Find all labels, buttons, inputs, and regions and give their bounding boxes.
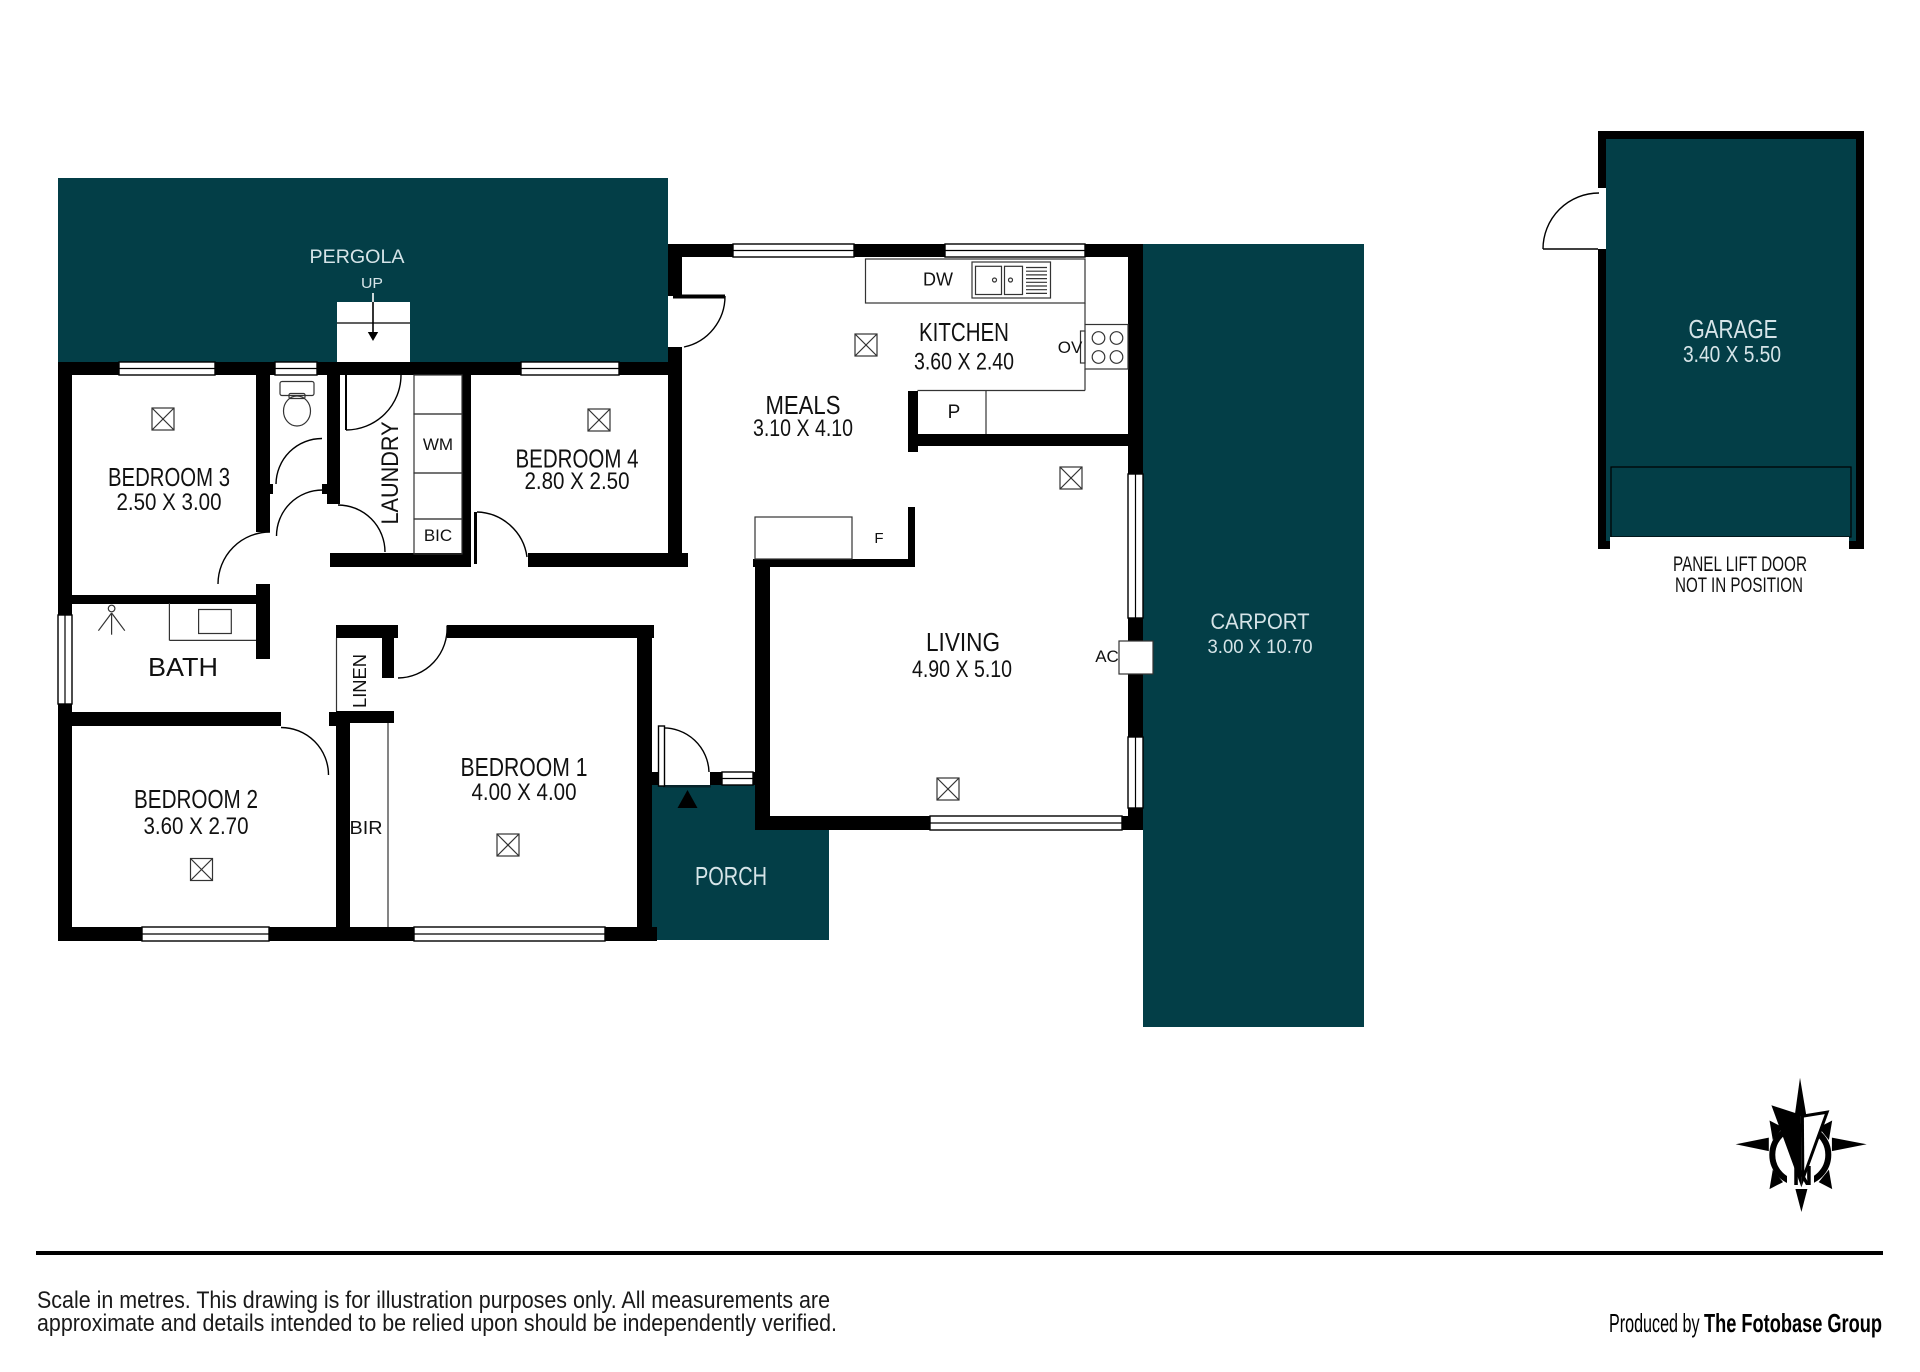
svg-text:BIR: BIR <box>350 818 383 838</box>
svg-text:UP: UP <box>361 275 383 292</box>
svg-text:PERGOLA: PERGOLA <box>310 247 405 268</box>
svg-text:GARAGE: GARAGE <box>1689 314 1778 344</box>
svg-text:BEDROOM 3: BEDROOM 3 <box>108 462 230 492</box>
svg-text:LAUNDRY: LAUNDRY <box>377 422 404 525</box>
svg-text:BATH: BATH <box>148 652 218 682</box>
svg-text:3.10 X 4.10: 3.10 X 4.10 <box>753 415 853 442</box>
svg-text:KITCHEN: KITCHEN <box>919 317 1009 347</box>
svg-text:3.00 X 10.70: 3.00 X 10.70 <box>1208 637 1313 658</box>
svg-text:approximate and details intend: approximate and details intended to be r… <box>37 1310 837 1337</box>
svg-text:3.40 X 5.50: 3.40 X 5.50 <box>1683 341 1781 367</box>
svg-text:Produced by The Fotobase Group: Produced by The Fotobase Group <box>1609 1308 1882 1338</box>
svg-text:4.00 X 4.00: 4.00 X 4.00 <box>472 779 577 806</box>
svg-text:AC: AC <box>1095 647 1119 666</box>
svg-text:P: P <box>948 402 961 423</box>
svg-text:DW: DW <box>923 270 953 290</box>
svg-text:PANEL LIFT DOOR: PANEL LIFT DOOR <box>1673 553 1807 576</box>
svg-text:LINEN: LINEN <box>350 654 370 708</box>
svg-text:WM: WM <box>423 435 453 454</box>
svg-text:3.60 X 2.40: 3.60 X 2.40 <box>914 349 1014 376</box>
svg-text:BIC: BIC <box>424 526 452 545</box>
svg-text:F: F <box>874 530 883 547</box>
svg-text:LIVING: LIVING <box>926 627 1000 657</box>
svg-text:N: N <box>1792 1160 1812 1191</box>
svg-text:PORCH: PORCH <box>695 861 767 891</box>
svg-text:BEDROOM 2: BEDROOM 2 <box>134 784 258 814</box>
svg-text:4.90 X 5.10: 4.90 X 5.10 <box>912 656 1012 683</box>
svg-text:2.80 X 2.50: 2.80 X 2.50 <box>525 468 630 495</box>
svg-text:2.50 X 3.00: 2.50 X 3.00 <box>117 489 222 516</box>
svg-text:OV: OV <box>1058 338 1083 357</box>
svg-text:CARPORT: CARPORT <box>1211 609 1310 634</box>
svg-text:NOT IN POSITION: NOT IN POSITION <box>1675 574 1803 597</box>
svg-text:3.60 X 2.70: 3.60 X 2.70 <box>144 813 249 840</box>
svg-text:BEDROOM 1: BEDROOM 1 <box>461 752 588 782</box>
